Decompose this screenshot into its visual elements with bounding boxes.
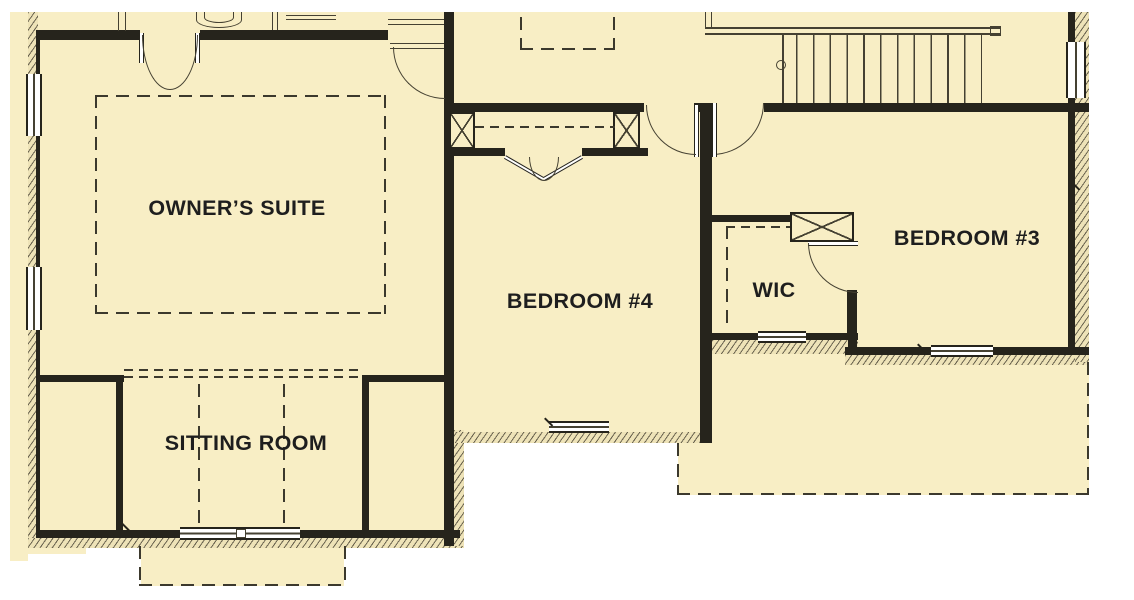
bedroom3-door-leaf <box>712 103 717 157</box>
top-shelf-line <box>286 15 336 20</box>
floor-plan: OWNER’S SUITE BEDROOM #4 WIC BEDROOM #3 … <box>0 0 1134 600</box>
bay-bump-left-edge <box>139 546 141 586</box>
window-owners-suite-left-2 <box>26 267 42 330</box>
sitting-room-label: SITTING ROOM <box>126 431 366 456</box>
closet-right-top-wall <box>362 375 452 382</box>
window-sitting-room-mullion <box>236 529 246 538</box>
arched-fixture-inner <box>204 12 234 23</box>
spine-wall-top-stub <box>444 12 454 30</box>
pocket-door-track-top <box>388 19 444 25</box>
stair-newel-post <box>776 60 786 70</box>
attic-access-bottom <box>520 48 615 50</box>
sitting-ceiling-dashed-right <box>283 384 285 530</box>
owners-suite-label: OWNER’S SUITE <box>117 196 357 221</box>
top-wall-stub-2 <box>272 12 278 30</box>
wic-bottom-jog-wall <box>848 333 857 355</box>
bay-bump-right-edge <box>344 546 346 586</box>
roof-below-bottom-edge <box>677 493 1089 495</box>
sitting-ceiling-dashed-left <box>198 384 200 530</box>
top-wall-stub-1 <box>118 12 126 31</box>
roof-below-left-edge <box>677 443 679 495</box>
roof-below-right-edge <box>1087 362 1089 494</box>
bedroom4-closet-front-right <box>582 148 648 156</box>
stair-treads <box>796 35 982 103</box>
window-owners-suite-left-1 <box>26 74 42 136</box>
bedroom4-right-wall <box>700 103 712 443</box>
roof-below-area-b <box>712 358 1089 444</box>
closet-left-top-wall <box>36 375 124 382</box>
bay-bump-out-floor <box>141 546 344 586</box>
window-bedroom3-bottom <box>931 345 993 357</box>
attic-access-left <box>520 17 522 50</box>
stair-edge-line <box>782 35 784 103</box>
wic-chase-box <box>790 212 854 242</box>
bedroom3-top-wall <box>764 103 1089 112</box>
closet-left-right-wall <box>116 375 123 535</box>
exterior-wall-bedroom4-bottom <box>444 432 712 443</box>
bedroom4-closet-front-left <box>449 148 505 156</box>
closet-chase-box-left <box>449 112 475 149</box>
window-bedroom4 <box>549 421 609 433</box>
left-wall-face-a <box>36 30 40 74</box>
owners-suite-top-wall-b <box>200 30 388 40</box>
owners-suite-top-wall-a <box>36 30 140 40</box>
window-bedroom3-right <box>1066 42 1086 98</box>
left-wall-face-b <box>36 136 40 267</box>
right-wall-face-a <box>1068 12 1075 42</box>
wic-rod-dashed-horizontal <box>726 226 790 228</box>
closet-chase-box-right <box>613 112 640 149</box>
sitting-header-dashed-2 <box>124 376 362 378</box>
sitting-header-dashed-1 <box>124 369 362 371</box>
stair-railing-end-cap <box>990 26 1001 36</box>
stair-railing <box>705 27 1000 35</box>
window-wic <box>758 331 806 343</box>
tray-ceiling-top <box>95 95 386 97</box>
tray-ceiling-right <box>384 95 386 314</box>
wic-label: WIC <box>729 278 819 303</box>
stair-wall-stub <box>705 12 712 28</box>
closet-shelf-dashed-line <box>475 126 615 128</box>
bay-bump-bottom-edge <box>139 584 346 586</box>
right-wall-face-b <box>1068 98 1075 350</box>
tray-ceiling-bottom <box>95 312 388 314</box>
bedroom-4-floor <box>454 12 712 443</box>
exterior-wall-closet-right <box>454 430 464 546</box>
left-wall-face-c <box>36 330 40 538</box>
bedroom4-top-wall <box>444 103 644 112</box>
attic-access-right <box>613 17 615 50</box>
owners-suite-floor <box>28 12 454 546</box>
wic-top-wall <box>712 215 792 222</box>
tray-ceiling-left <box>95 95 97 314</box>
bedroom-4-label: BEDROOM #4 <box>460 289 700 314</box>
roof-below-area-a <box>678 443 1089 495</box>
bedroom-3-label: BEDROOM #3 <box>847 226 1087 251</box>
